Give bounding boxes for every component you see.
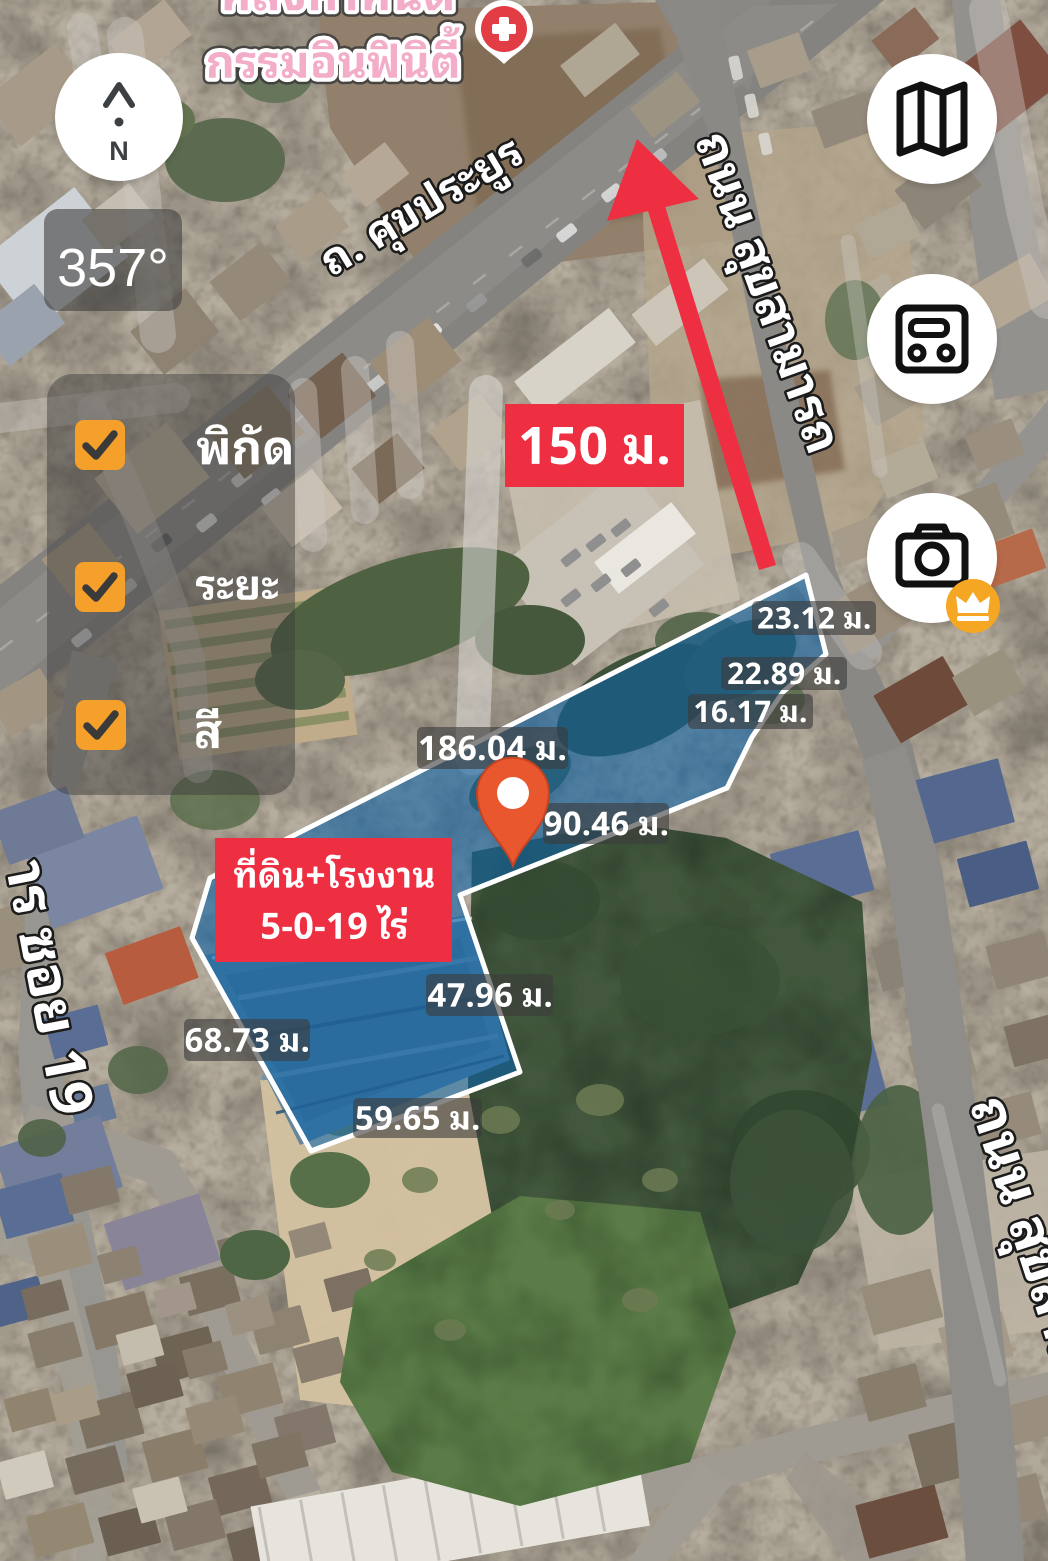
svg-text:357°: 357° (57, 238, 169, 298)
svg-text:N: N (109, 136, 129, 166)
